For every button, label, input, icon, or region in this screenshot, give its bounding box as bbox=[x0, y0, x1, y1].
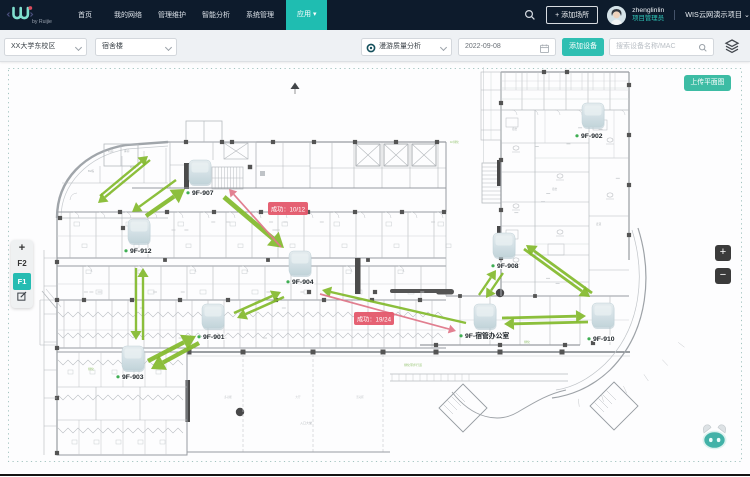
svg-text:9F-912: 9F-912 bbox=[130, 248, 152, 255]
svg-text:机房: 机房 bbox=[108, 149, 114, 153]
svg-text:9F-908: 9F-908 bbox=[497, 263, 519, 270]
svg-text:活动区: 活动区 bbox=[356, 395, 364, 399]
svg-text:by Ruijie: by Ruijie bbox=[32, 19, 52, 25]
svg-text:多功能: 多功能 bbox=[224, 395, 232, 399]
svg-text:走道: 走道 bbox=[596, 222, 602, 226]
svg-text:绿化带步行道: 绿化带步行道 bbox=[404, 362, 422, 367]
svg-text:成功：10/12: 成功：10/12 bbox=[271, 206, 306, 214]
svg-text:9F-903: 9F-903 bbox=[122, 374, 144, 381]
svg-text:绿化: 绿化 bbox=[88, 366, 94, 371]
svg-text:9F-910: 9F-910 bbox=[593, 336, 615, 343]
svg-text:入口大堂: 入口大堂 bbox=[300, 420, 312, 425]
svg-text:9F-902: 9F-902 bbox=[581, 133, 603, 140]
svg-text:成功：19/24: 成功：19/24 bbox=[357, 316, 392, 324]
svg-text:宿舍: 宿舍 bbox=[512, 127, 518, 131]
svg-text:9F-宿管办公室: 9F-宿管办公室 bbox=[465, 331, 509, 340]
svg-text:9F-907: 9F-907 bbox=[192, 190, 214, 197]
svg-text:大厅: 大厅 bbox=[295, 395, 301, 399]
svg-text:库房: 库房 bbox=[124, 149, 130, 153]
svg-text:9F-901: 9F-901 bbox=[203, 334, 225, 341]
svg-text:1F绿化: 1F绿化 bbox=[450, 140, 459, 144]
svg-text:9F-904: 9F-904 bbox=[292, 279, 314, 286]
svg-text:绿化: 绿化 bbox=[524, 339, 530, 344]
svg-text:宿舍: 宿舍 bbox=[552, 187, 558, 191]
svg-text:B2栋: B2栋 bbox=[88, 169, 94, 173]
